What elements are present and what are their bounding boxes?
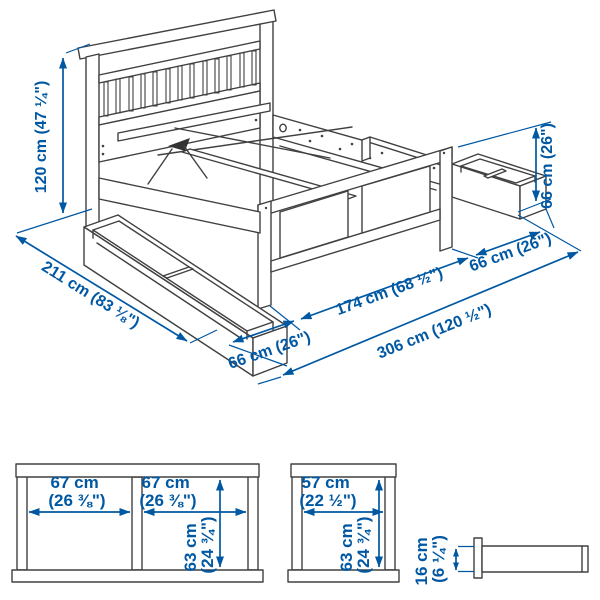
- box-side-end-cap: [474, 538, 482, 578]
- dim-side-height-label: 16 cm (6 ¼"): [412, 533, 448, 586]
- detail-box-side-view: 16 cm (6 ¼"): [412, 533, 588, 586]
- inner-box-wall-end: [362, 137, 370, 161]
- dim-side-height-ticks: [458, 547, 474, 572]
- rail-hole: [280, 124, 286, 132]
- screw-hole: [102, 145, 105, 148]
- headboard-right-post: [260, 17, 273, 211]
- headboard-left-post: [86, 54, 99, 241]
- box-bottom-rail: [12, 570, 263, 582]
- detail-single-box-front: 57 cm (22 ½") 63 cm (24 ¾"): [288, 464, 399, 582]
- dim-box-width-label: 57 cm (22 ½"): [299, 473, 356, 510]
- box-left-stile: [292, 465, 302, 570]
- box-right-stile: [385, 465, 395, 570]
- dim-bed-width-label: 174 cm (68 ½"): [334, 265, 446, 319]
- dimension-bed-width: 174 cm (68 ½"): [301, 249, 478, 319]
- bed-dimension-diagram: 120 cm (47 ¼") 211 cm (83 ⅛") 66 cm (26"…: [0, 0, 600, 600]
- bed-isometric-drawing: 120 cm (47 ¼") 211 cm (83 ⅛") 66 cm (26"…: [16, 10, 581, 384]
- dim-headboard-height-label: 120 cm (47 ¼"): [33, 81, 50, 194]
- dim-compartment2-label: 67 cm (26 ⅜"): [139, 473, 196, 510]
- product-dimension-page: 120 cm (47 ¼") 211 cm (83 ⅛") 66 cm (26"…: [0, 0, 600, 600]
- dimension-headboard-height: 120 cm (47 ¼"): [17, 44, 92, 233]
- dim-footboard-height-label: 66 cm (26"): [539, 123, 556, 209]
- dim-compartment1-label: 67 cm (26 ⅜"): [48, 473, 105, 510]
- screw-hole: [265, 207, 267, 209]
- storage-box-right: [452, 154, 546, 219]
- screw-hole: [255, 119, 258, 122]
- dimension-right-box-extension: 66 cm (26"): [467, 209, 554, 275]
- box-side-board: [482, 546, 588, 572]
- dim-total-width-label: 306 cm (120 ½"): [375, 301, 494, 362]
- box-right-stile: [248, 465, 258, 570]
- dim-box-height-label: 63 cm (24 ¾"): [337, 516, 373, 573]
- box-left-stile: [17, 465, 27, 570]
- screw-hole: [443, 152, 445, 154]
- dim-box-height-label: 63 cm (24 ¾"): [181, 516, 217, 573]
- screw-hole: [102, 153, 105, 156]
- detail-double-box-front: 67 cm (26 ⅜") 67 cm (26 ⅜") 63 cm (24 ¾"…: [12, 464, 263, 582]
- footboard-right-leg: [440, 147, 452, 251]
